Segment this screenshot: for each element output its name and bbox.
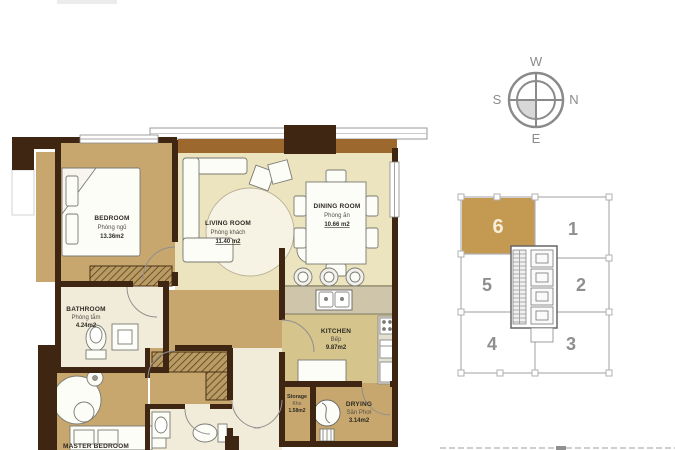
apartment-floorplan: BEDROOM Phòng ngủ 13.36m2 LIVING ROOM Ph… [12, 125, 427, 450]
bed-icon [62, 168, 140, 256]
bathroom-sink-icon [112, 324, 138, 350]
svg-text:3.14m2: 3.14m2 [349, 418, 370, 424]
svg-text:10.66 m2: 10.66 m2 [324, 222, 350, 228]
cropped-text-bottom [440, 446, 675, 450]
wc-sink-icon [152, 412, 170, 438]
left-ledge-floor [36, 152, 55, 282]
unit-label-6: 6 [492, 216, 503, 238]
svg-text:DRYING: DRYING [346, 401, 372, 408]
compass-north-label: N [569, 92, 578, 107]
svg-text:Phòng ăn: Phòng ăn [324, 213, 350, 219]
toilet-icon [86, 325, 106, 359]
compass-west-label: W [530, 54, 543, 69]
kitchen-counter-icon [282, 286, 396, 314]
corridor-floor [168, 290, 282, 348]
bar-stools-icon [294, 268, 364, 286]
svg-text:13.36m2: 13.36m2 [100, 234, 124, 240]
svg-text:LIVING ROOM: LIVING ROOM [205, 220, 251, 227]
svg-text:Phòng ngủ: Phòng ngủ [97, 224, 126, 231]
floorplan-page: BEDROOM Phòng ngủ 13.36m2 LIVING ROOM Ph… [0, 0, 675, 450]
compass-rose: W S N E [493, 54, 579, 146]
kitchen-island-icon [298, 360, 346, 384]
svg-text:Storage: Storage [287, 394, 307, 400]
cropped-artifact-top [57, 0, 117, 4]
svg-text:KITCHEN: KITCHEN [321, 328, 351, 335]
svg-text:Bếp: Bếp [331, 337, 342, 343]
drying-label: DRYING Sân Phơi 3.14m2 [346, 401, 372, 424]
svg-text:BEDROOM: BEDROOM [94, 215, 129, 222]
corridor-closet2-icon [206, 372, 230, 400]
svg-text:Kho: Kho [293, 401, 302, 407]
wc-toilet-icon [193, 424, 227, 442]
svg-text:9.87m2: 9.87m2 [326, 345, 347, 351]
compass-east-label: E [532, 131, 541, 146]
svg-text:1.58m2: 1.58m2 [289, 408, 306, 414]
unit-label-4: 4 [487, 334, 497, 354]
svg-text:Phòng khách: Phòng khách [210, 230, 245, 236]
compass-south-label: S [493, 92, 502, 107]
compass-quadrant-fill [517, 100, 536, 119]
svg-text:BATHROOM: BATHROOM [66, 306, 105, 313]
floorplan-canvas: BEDROOM Phòng ngủ 13.36m2 LIVING ROOM Ph… [0, 0, 675, 450]
svg-text:Phòng tắm: Phòng tắm [71, 314, 100, 321]
vestibule-floor [232, 348, 282, 450]
svg-text:4.24m2: 4.24m2 [76, 323, 97, 329]
unit-label-2: 2 [576, 275, 586, 295]
building-core [511, 246, 557, 342]
unit-label-3: 3 [566, 334, 576, 354]
master-bedroom-label: MASTER BEDROOM [63, 443, 129, 450]
svg-text:DINING ROOM: DINING ROOM [314, 203, 361, 210]
svg-text:11.40 m2: 11.40 m2 [215, 239, 241, 245]
unit-label-5: 5 [482, 275, 492, 295]
unit-label-1: 1 [568, 219, 578, 239]
svg-text:Sân Phơi: Sân Phơi [347, 410, 372, 416]
unit-key-plan: 6 1 5 2 4 3 [458, 194, 612, 376]
